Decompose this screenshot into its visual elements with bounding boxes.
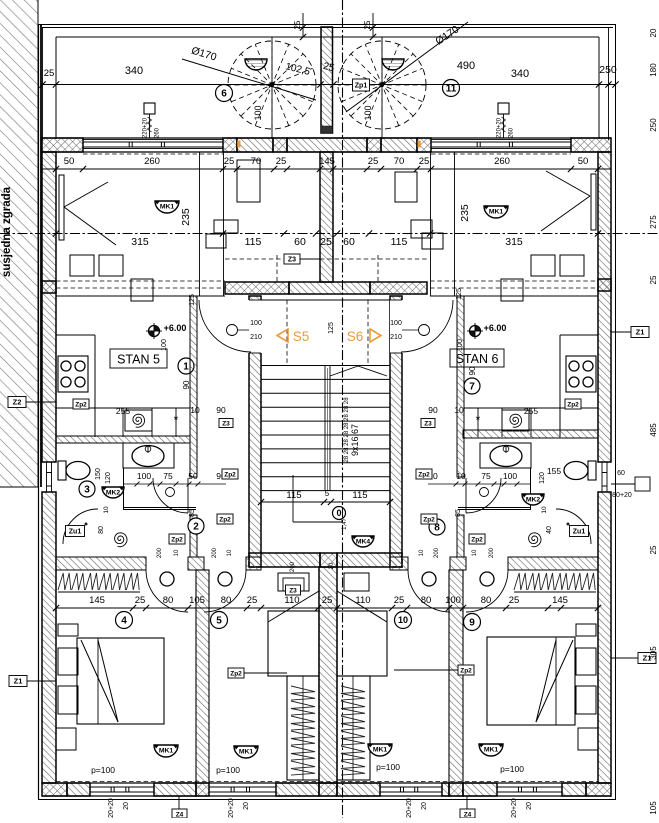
- svg-text:Zp2: Zp2: [230, 670, 242, 677]
- svg-text:Z3: Z3: [289, 587, 297, 594]
- svg-text:p=100: p=100: [91, 765, 115, 775]
- svg-text:490: 490: [457, 60, 475, 72]
- svg-text:7: 7: [469, 382, 475, 393]
- svg-text:10: 10: [541, 506, 548, 514]
- svg-text:80: 80: [421, 595, 432, 606]
- svg-text:20+20: 20+20: [511, 798, 518, 818]
- svg-text:80: 80: [481, 595, 492, 606]
- svg-text:80: 80: [221, 595, 232, 606]
- svg-text:145: 145: [319, 156, 335, 167]
- svg-text:MK1: MK1: [239, 749, 254, 756]
- svg-text:50: 50: [578, 156, 589, 167]
- svg-text:Z2: Z2: [13, 398, 22, 407]
- svg-text:125: 125: [328, 322, 335, 334]
- svg-text:90: 90: [216, 405, 226, 415]
- svg-text:25: 25: [368, 156, 379, 167]
- svg-text:85: 85: [455, 509, 462, 517]
- svg-text:200: 200: [489, 547, 495, 558]
- svg-text:9: 9: [469, 618, 475, 629]
- svg-text:200: 200: [290, 561, 296, 572]
- svg-text:105: 105: [189, 595, 205, 606]
- svg-text:60: 60: [294, 236, 306, 248]
- svg-text:Zp1: Zp1: [355, 82, 368, 89]
- svg-text:100: 100: [137, 471, 151, 481]
- svg-text:20: 20: [243, 802, 250, 810]
- svg-text:25: 25: [509, 595, 520, 606]
- svg-text:200: 200: [157, 547, 163, 558]
- svg-text:80: 80: [163, 595, 174, 606]
- svg-text:255: 255: [524, 406, 538, 416]
- svg-text:25: 25: [649, 275, 658, 284]
- svg-text:10: 10: [227, 549, 233, 556]
- svg-text:80+20: 80+20: [612, 492, 632, 499]
- svg-text:Z3: Z3: [222, 420, 230, 427]
- svg-text:20+20: 20+20: [406, 798, 413, 818]
- svg-text:Zp2: Zp2: [460, 667, 472, 674]
- svg-text:Zp2: Zp2: [224, 471, 236, 478]
- svg-text:MK1: MK1: [373, 747, 388, 754]
- svg-text:Zp2: Zp2: [567, 401, 579, 408]
- svg-text:260: 260: [155, 127, 161, 138]
- svg-text:25: 25: [394, 595, 405, 606]
- svg-text:120: 120: [105, 472, 112, 484]
- svg-text:180: 180: [649, 63, 658, 77]
- svg-text:0: 0: [336, 508, 341, 518]
- svg-text:STAN 5: STAN 5: [117, 353, 160, 367]
- svg-text:100: 100: [250, 320, 262, 327]
- svg-text:25: 25: [247, 595, 258, 606]
- svg-text:MK1: MK1: [160, 204, 175, 211]
- svg-text:255: 255: [116, 406, 130, 416]
- svg-text:2: 2: [193, 522, 199, 533]
- svg-text:60: 60: [617, 470, 625, 477]
- svg-text:20+20: 20+20: [228, 798, 235, 818]
- svg-text:25: 25: [135, 595, 146, 606]
- svg-text:10: 10: [456, 471, 466, 481]
- svg-text:MK1: MK1: [484, 747, 499, 754]
- svg-text:Zp2: Zp2: [75, 401, 87, 408]
- svg-text:80: 80: [98, 526, 105, 534]
- svg-text:+6.00: +6.00: [484, 323, 507, 333]
- svg-text:10: 10: [174, 549, 180, 556]
- svg-text:145: 145: [89, 595, 105, 606]
- svg-text:S5: S5: [293, 329, 310, 344]
- svg-text:70: 70: [251, 156, 262, 167]
- svg-text:Zp2: Zp2: [418, 471, 430, 478]
- svg-text:20: 20: [649, 28, 658, 37]
- svg-text:250: 250: [599, 64, 617, 76]
- svg-text:MK1: MK1: [159, 748, 174, 755]
- svg-text:260: 260: [494, 156, 510, 167]
- svg-text:10: 10: [398, 615, 408, 625]
- svg-text:340: 340: [125, 65, 143, 77]
- svg-text:Z3: Z3: [424, 420, 432, 427]
- svg-text:155: 155: [547, 466, 561, 476]
- svg-text:*: *: [476, 413, 481, 427]
- svg-text:Zu1: Zu1: [573, 528, 586, 535]
- svg-text:Zp2: Zp2: [423, 516, 435, 523]
- svg-text:4: 4: [121, 616, 127, 627]
- svg-text:Z1: Z1: [14, 677, 23, 686]
- svg-text:125: 125: [456, 288, 463, 300]
- svg-text:Z3: Z3: [288, 256, 296, 263]
- svg-text:210: 210: [390, 334, 402, 341]
- svg-text:25: 25: [322, 595, 333, 606]
- svg-text:Z4: Z4: [464, 812, 472, 819]
- svg-text:315: 315: [505, 236, 523, 248]
- svg-text:25: 25: [44, 68, 55, 79]
- svg-text:20: 20: [123, 802, 130, 810]
- svg-text:25: 25: [293, 20, 302, 29]
- svg-text:90: 90: [468, 366, 477, 375]
- svg-text:90: 90: [428, 405, 438, 415]
- svg-text:50: 50: [188, 471, 198, 481]
- svg-text:Z4: Z4: [176, 812, 184, 819]
- svg-text:Zu1: Zu1: [69, 528, 82, 535]
- svg-text:MK2: MK2: [106, 490, 121, 497]
- svg-text:MK2: MK2: [526, 497, 541, 504]
- svg-text:100: 100: [161, 339, 168, 351]
- svg-text:Zp2: Zp2: [171, 536, 183, 543]
- svg-text:1: 1: [183, 362, 189, 373]
- svg-text:120: 120: [539, 472, 546, 484]
- svg-text:Zp2: Zp2: [471, 536, 483, 543]
- svg-text:115: 115: [352, 490, 367, 501]
- svg-text:60: 60: [343, 236, 355, 248]
- svg-text:20+20: 20+20: [108, 798, 115, 818]
- svg-text:Zp2: Zp2: [219, 516, 231, 523]
- svg-text:25: 25: [649, 545, 658, 554]
- svg-text:210: 210: [250, 334, 262, 341]
- svg-text:*: *: [174, 413, 179, 427]
- svg-text:485: 485: [649, 423, 658, 437]
- svg-text:20: 20: [526, 802, 533, 810]
- svg-text:100: 100: [363, 105, 373, 120]
- svg-text:p=100: p=100: [500, 764, 524, 774]
- svg-text:235: 235: [459, 204, 471, 222]
- svg-text:10: 10: [472, 549, 478, 556]
- svg-text:105: 105: [649, 801, 658, 815]
- svg-text:235: 235: [180, 208, 192, 226]
- svg-text:220+20: 220+20: [497, 117, 503, 138]
- svg-text:100: 100: [390, 320, 402, 327]
- svg-text:75: 75: [481, 471, 491, 481]
- svg-text:MK4: MK4: [356, 539, 371, 546]
- svg-text:11: 11: [446, 84, 457, 95]
- svg-text:10: 10: [103, 506, 110, 514]
- svg-text:6: 6: [221, 89, 227, 100]
- svg-text:100: 100: [253, 105, 263, 120]
- svg-text:150: 150: [95, 468, 102, 480]
- svg-text:p=100: p=100: [216, 765, 240, 775]
- svg-text:5: 5: [325, 489, 330, 498]
- svg-text:75: 75: [163, 471, 173, 481]
- svg-text:40: 40: [546, 526, 553, 534]
- svg-text:5: 5: [216, 616, 222, 627]
- svg-text:200: 200: [434, 547, 440, 558]
- svg-text:25: 25: [320, 236, 332, 248]
- svg-text:115: 115: [245, 236, 262, 248]
- svg-text:125: 125: [189, 294, 196, 306]
- svg-text:200: 200: [212, 547, 218, 558]
- svg-text:9x16.67: 9x16.67: [350, 424, 360, 456]
- svg-text:100: 100: [445, 595, 461, 606]
- svg-text:S6: S6: [347, 329, 364, 344]
- svg-text:10: 10: [419, 549, 425, 556]
- svg-text:20: 20: [329, 562, 335, 569]
- svg-text:Z1: Z1: [636, 328, 645, 337]
- svg-text:145: 145: [552, 595, 568, 606]
- svg-text:260: 260: [144, 156, 160, 167]
- svg-text:260: 260: [509, 127, 515, 138]
- svg-text:25: 25: [276, 156, 287, 167]
- svg-text:susjedna zgrada: susjedna zgrada: [1, 186, 13, 277]
- svg-text:25: 25: [224, 156, 235, 167]
- svg-text:250: 250: [649, 118, 658, 132]
- svg-text:+6.00: +6.00: [164, 323, 187, 333]
- svg-text:305: 305: [649, 646, 658, 660]
- svg-text:340: 340: [511, 68, 529, 80]
- svg-text:25: 25: [363, 20, 372, 29]
- svg-text:70: 70: [394, 156, 405, 167]
- svg-text:20: 20: [421, 802, 428, 810]
- svg-text:315: 315: [131, 236, 149, 248]
- svg-text:50: 50: [64, 156, 75, 167]
- svg-text:100: 100: [503, 471, 517, 481]
- svg-text:MK1: MK1: [489, 209, 504, 216]
- svg-text:p=100: p=100: [376, 762, 400, 772]
- svg-text:115: 115: [286, 490, 301, 501]
- svg-text:220+20: 220+20: [143, 117, 149, 138]
- svg-text:25: 25: [419, 156, 430, 167]
- svg-text:85: 85: [189, 509, 196, 517]
- svg-text:275: 275: [649, 215, 658, 229]
- svg-text:3: 3: [84, 485, 90, 496]
- svg-text:28 28 28 28 28 28 28 28: 28 28 28 28 28 28 28 28: [344, 397, 350, 463]
- svg-text:115: 115: [391, 236, 408, 248]
